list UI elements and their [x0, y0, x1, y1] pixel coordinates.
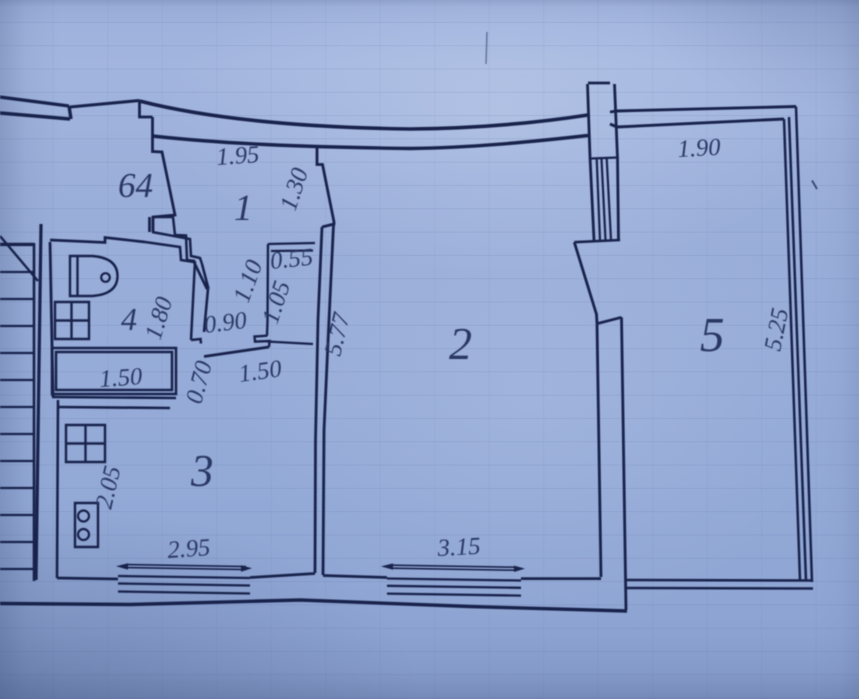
svg-text:1: 1 — [234, 188, 253, 229]
svg-text:1.05: 1.05 — [257, 278, 296, 327]
svg-text:1.80: 1.80 — [140, 294, 178, 343]
svg-text:5.77: 5.77 — [320, 309, 356, 359]
svg-text:3.15: 3.15 — [436, 533, 481, 562]
svg-text:0.90: 0.90 — [202, 307, 248, 339]
svg-text:1.90: 1.90 — [677, 134, 721, 163]
svg-text:0.70: 0.70 — [181, 358, 218, 406]
svg-text:3: 3 — [190, 446, 214, 496]
svg-text:64: 64 — [118, 166, 153, 205]
svg-text:5: 5 — [700, 307, 725, 362]
svg-text:1.50: 1.50 — [99, 363, 144, 393]
svg-text:2.95: 2.95 — [167, 534, 212, 564]
svg-text:2.05: 2.05 — [91, 463, 127, 511]
svg-text:1.95: 1.95 — [216, 141, 261, 171]
svg-text:5.25: 5.25 — [759, 306, 794, 353]
svg-text:4: 4 — [121, 301, 137, 337]
svg-text:1.50: 1.50 — [237, 355, 283, 388]
svg-text:2: 2 — [449, 318, 472, 369]
svg-text:0.55: 0.55 — [269, 244, 314, 275]
svg-text:1.10: 1.10 — [228, 257, 268, 307]
svg-text:1.30: 1.30 — [275, 165, 314, 214]
